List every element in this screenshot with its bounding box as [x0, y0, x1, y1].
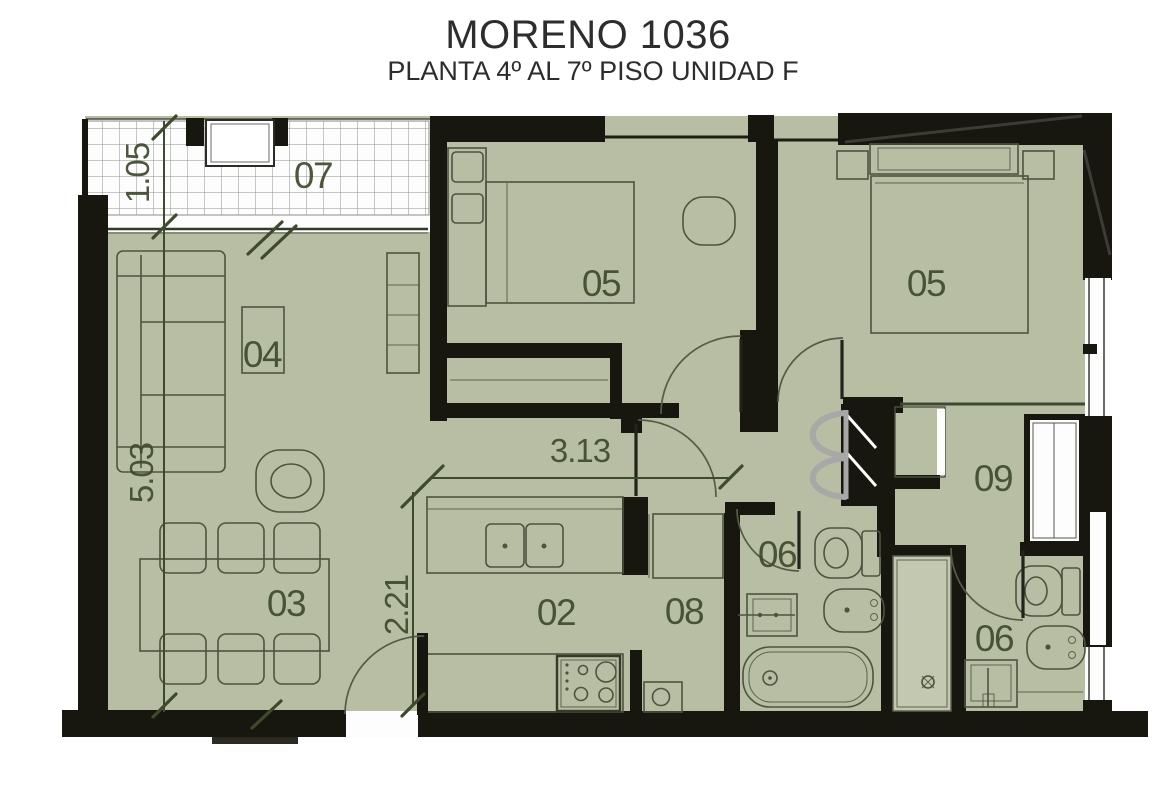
planter: [206, 120, 274, 166]
header: MORENO 1036 PLANTA 4º AL 7º PISO UNIDAD …: [387, 13, 798, 86]
floor-plan: MORENO 1036 PLANTA 4º AL 7º PISO UNIDAD …: [0, 0, 1170, 785]
dim-kitchen-depth: 2.21: [378, 575, 415, 635]
wall-east-upper: [1083, 113, 1112, 280]
wall-laundry-bath: [724, 513, 740, 713]
room-label-living: 04: [243, 334, 282, 375]
room-label-kitchen: 02: [537, 592, 575, 633]
room-label-bathroom1: 06: [758, 534, 796, 575]
wall-north-bedroom1: [430, 116, 605, 142]
floor-plan-page: MORENO 1036 PLANTA 4º AL 7º PISO UNIDAD …: [0, 0, 1170, 785]
room-label-dining: 03: [267, 583, 305, 624]
room-label-bathroom2: 06: [975, 618, 1013, 659]
page-title: MORENO 1036: [445, 13, 731, 57]
wall-south-right: [418, 711, 1148, 737]
dim-living-length: 5.03: [123, 443, 160, 503]
room-label-balcony: 07: [294, 155, 332, 196]
room-label-laundry: 08: [665, 591, 703, 632]
room-label-bedroom2: 05: [907, 263, 946, 304]
room-label-dressing: 09: [974, 458, 1012, 499]
dim-kitchen-width: 3.13: [550, 432, 610, 469]
wall-south-left: [62, 710, 346, 737]
wall-between-bedrooms: [756, 140, 778, 332]
dim-balcony-depth: 1.05: [119, 143, 156, 203]
wall-west: [78, 195, 108, 735]
page-subtitle: PLANTA 4º AL 7º PISO UNIDAD F: [387, 56, 798, 86]
room-label-bedroom1: 05: [582, 263, 621, 304]
shower: [893, 556, 951, 711]
wall-living-bedroom1: [430, 116, 447, 421]
